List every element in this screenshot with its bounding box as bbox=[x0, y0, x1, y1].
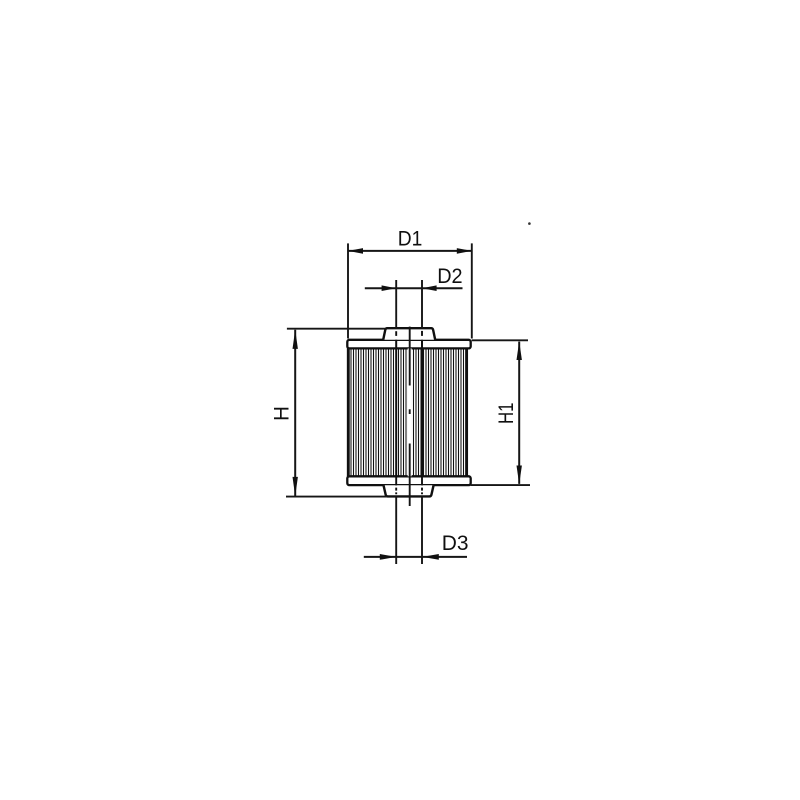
svg-text:D1: D1 bbox=[398, 227, 423, 250]
svg-text:H: H bbox=[271, 406, 294, 421]
svg-text:D2: D2 bbox=[437, 265, 462, 288]
svg-text:D3: D3 bbox=[442, 532, 469, 555]
svg-text:H1: H1 bbox=[495, 403, 518, 425]
